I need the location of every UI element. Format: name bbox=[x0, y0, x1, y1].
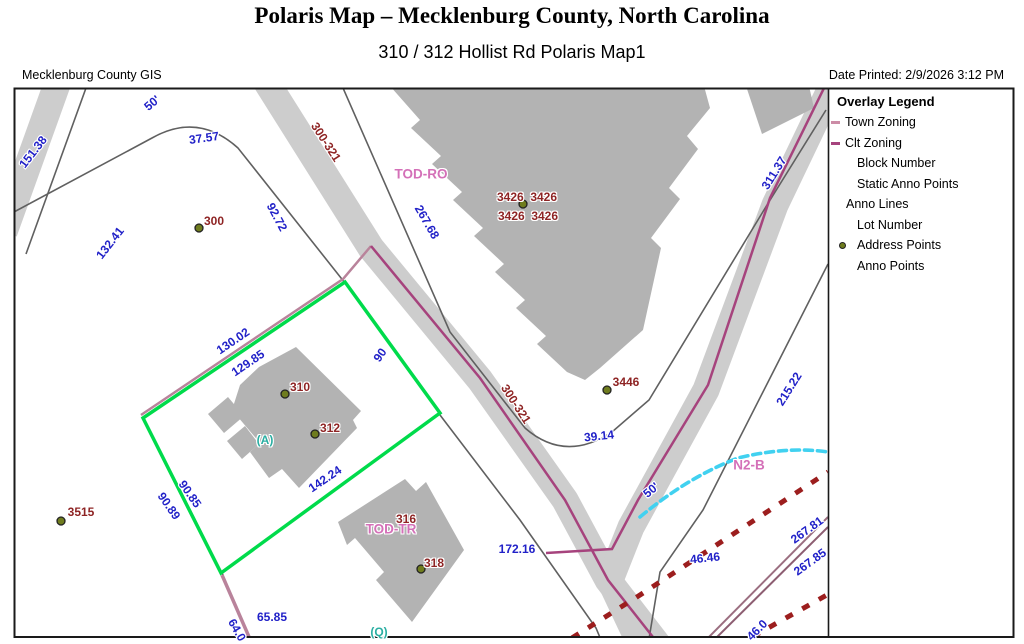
legend-item-anno-points: Anno Points bbox=[830, 256, 1012, 277]
zone-label: TOD-RO bbox=[395, 167, 448, 182]
address-label: 3426 3426 bbox=[498, 209, 558, 223]
dim-label: 172.16 bbox=[499, 542, 536, 556]
address-label: 3515 bbox=[68, 505, 95, 519]
legend-item-lot-number: Lot Number bbox=[830, 215, 1012, 236]
lot-letter-label: (Q) bbox=[370, 625, 387, 639]
legend-item-block-number: Block Number bbox=[830, 153, 1012, 174]
building-316-318 bbox=[338, 479, 464, 622]
legend-item-static-anno-points: Static Anno Points bbox=[830, 174, 1012, 195]
legend-item-address-points: Address Points bbox=[830, 235, 1012, 256]
town-zoning-dash-icon bbox=[831, 121, 840, 124]
legend-item-anno-lines: Anno Lines bbox=[830, 194, 1012, 215]
address-point-dot-icon bbox=[839, 242, 846, 249]
clt-zoning-dash-icon bbox=[831, 142, 840, 146]
address-label: 310 bbox=[290, 380, 310, 394]
legend-item-town-zoning: Town Zoning bbox=[830, 112, 1012, 133]
zone-label: N2-B bbox=[733, 458, 765, 473]
lot-letter-label: (A) bbox=[257, 433, 274, 447]
legend-title: Overlay Legend bbox=[830, 90, 1012, 112]
address-label: 312 bbox=[320, 421, 340, 435]
address-label: 318 bbox=[424, 556, 444, 570]
legend-item-clt-zoning: Clt Zoning bbox=[830, 133, 1012, 154]
address-label: 3446 bbox=[613, 375, 640, 389]
dim-label: 65.85 bbox=[257, 610, 287, 624]
address-label: 316 bbox=[396, 512, 416, 526]
overlay-legend: Overlay Legend Town Zoning Clt Zoning Bl… bbox=[830, 90, 1012, 636]
address-label: 300 bbox=[204, 214, 224, 228]
address-label: 3426 3426 bbox=[497, 190, 557, 204]
